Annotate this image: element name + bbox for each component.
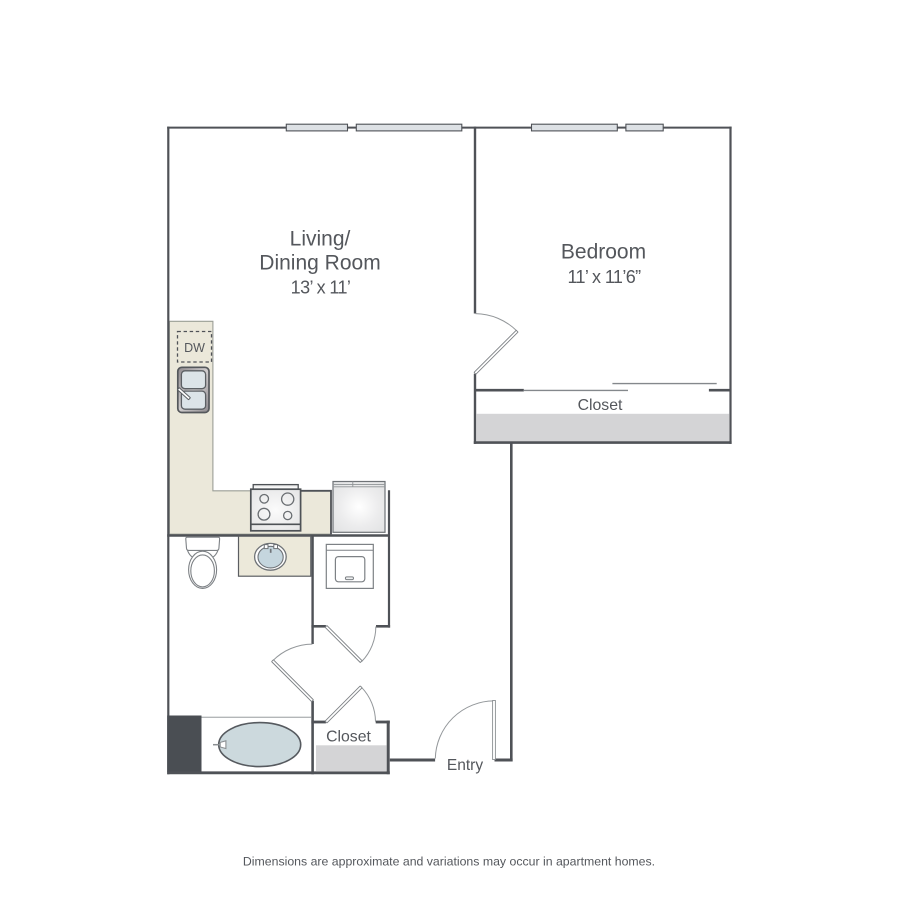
svg-text:Dimensions are approximate and: Dimensions are approximate and variation… [243,854,655,868]
svg-text:DW: DW [184,341,205,355]
svg-text:Entry: Entry [447,757,483,774]
svg-text:11’ x 11’6”: 11’ x 11’6” [567,267,641,287]
svg-text:13’ x 11’: 13’ x 11’ [291,278,351,298]
svg-text:Living/: Living/ [290,228,351,251]
svg-text:Closet: Closet [578,397,623,414]
svg-text:Dining Room: Dining Room [259,252,380,275]
svg-text:Bedroom: Bedroom [561,241,646,264]
svg-text:Closet: Closet [326,729,371,746]
